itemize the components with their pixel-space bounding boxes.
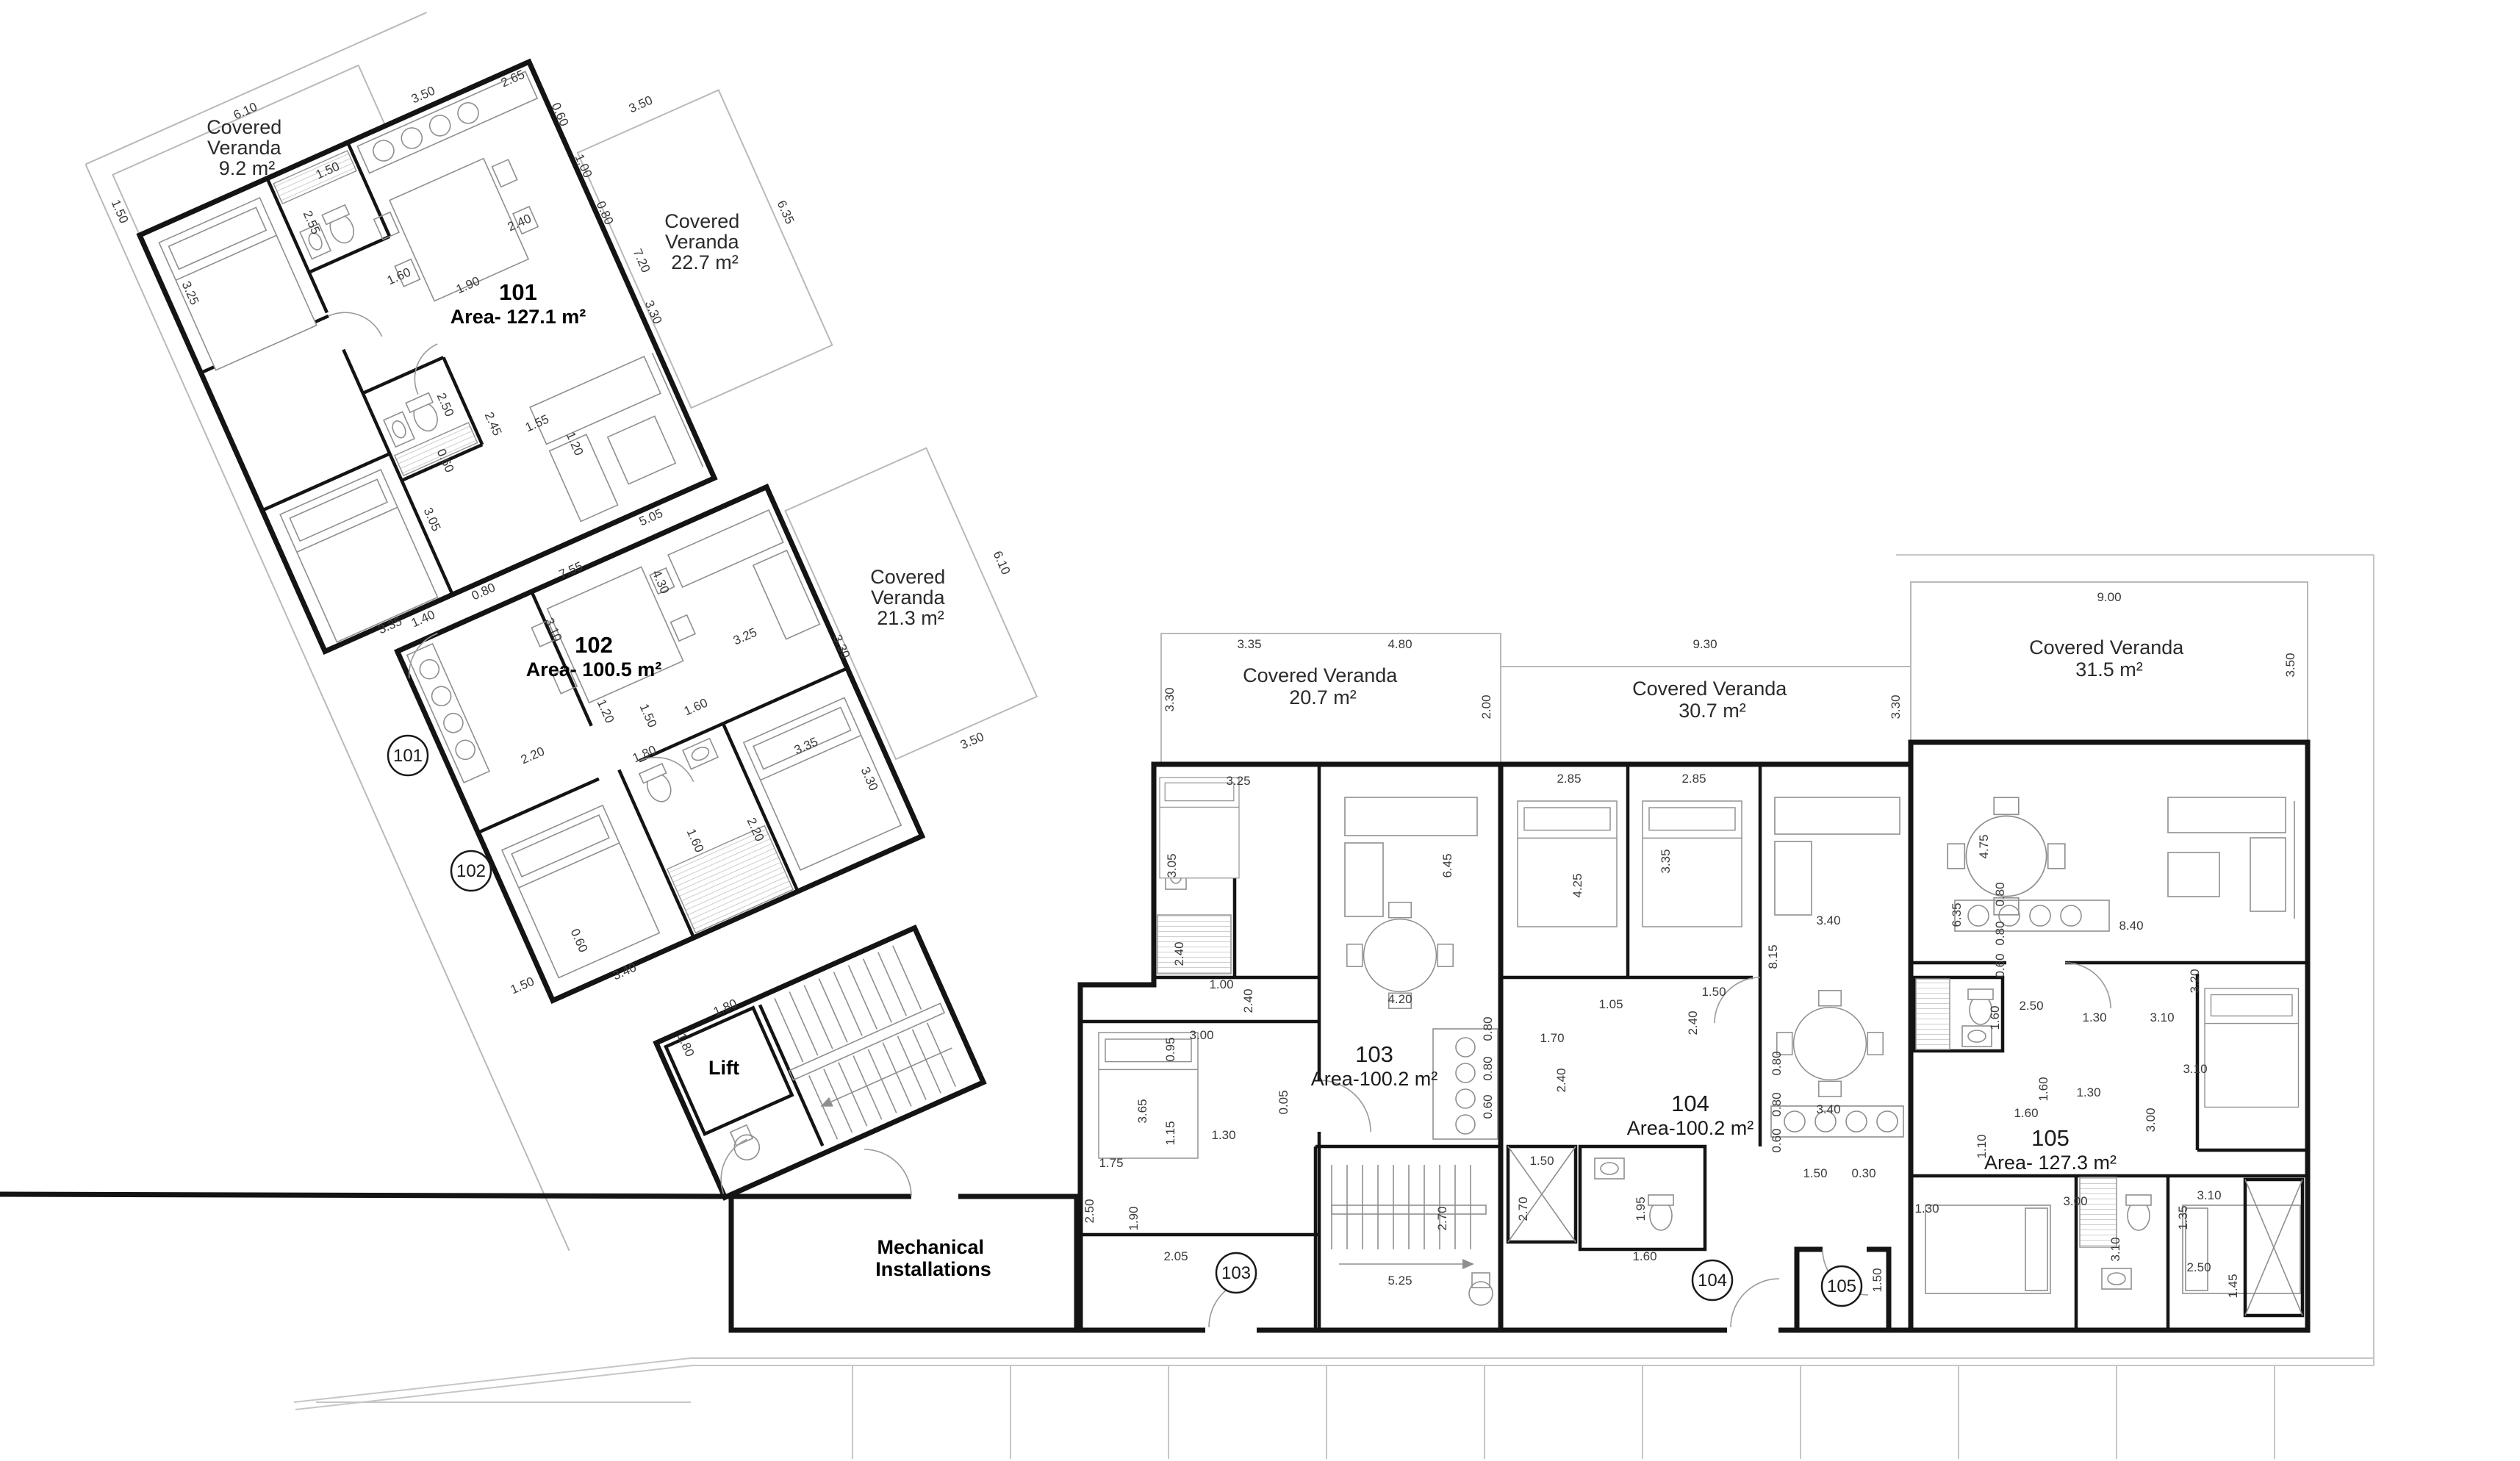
dimension-label: 1.50 (1803, 1166, 1827, 1180)
dimension-label: 2.05 (1163, 1249, 1188, 1263)
apartment-102-label: 102 (575, 632, 613, 658)
dimension-label: 1.20 (595, 697, 617, 725)
dimension-label: 1.90 (454, 274, 482, 297)
dimension-label: 3.10 (2183, 1062, 2207, 1076)
wheelchair-icon (1469, 1282, 1493, 1305)
dimension-label: 1.30 (2082, 1011, 2106, 1024)
dimension-label: 6.45 (1440, 853, 1454, 877)
dimension-label: 1.60 (684, 827, 707, 855)
dimension-label: 2.85 (1681, 772, 1706, 786)
dimension-label: 4.25 (1570, 873, 1584, 897)
dimension-label: 3.10 (2108, 1237, 2122, 1261)
dimension-label: 1.55 (523, 412, 551, 435)
dimension-label: 8.15 (1766, 944, 1780, 969)
apartment-105-label: 105 (2031, 1125, 2070, 1151)
dimension-label: 0.80 (1481, 1016, 1495, 1041)
dimension-labels: 6.101.503.502.650.601.000.803.303.252.55… (109, 68, 2297, 1299)
apartment-badge-105: 105 (1822, 1266, 1862, 1306)
veranda-20-7-label: Covered Veranda 20.7 m² (1243, 664, 1403, 708)
dimension-label: 3.40 (611, 961, 639, 983)
dimension-label: 2.40 (1241, 988, 1255, 1013)
dimension-label: 4.80 (1388, 637, 1412, 651)
dimension-label: 1.60 (1988, 1005, 2002, 1030)
apartment-badge-104: 104 (1692, 1260, 1732, 1300)
dimension-label: 1.35 (2176, 1205, 2190, 1230)
apartment-103-area: Area-100.2 m² (1311, 1068, 1438, 1090)
dimension-label: 0.05 (1277, 1090, 1290, 1114)
dimension-label: 3.40 (1816, 1102, 1840, 1116)
dimension-label: 2.00 (1479, 694, 1493, 719)
dimension-label: 0.60 (1993, 953, 2007, 977)
dimension-label: 0.80 (1481, 1056, 1495, 1080)
dimension-label: 1.50 (509, 974, 536, 997)
dimension-label: 6.35 (1950, 902, 1964, 927)
mechanical-label: Mechanical Installations (875, 1236, 991, 1280)
dimension-label: 1.50 (109, 198, 132, 226)
dimension-label: 8.40 (2119, 919, 2143, 933)
dimension-label: 0.60 (1770, 1128, 1784, 1152)
veranda-21-3-label: Covered Veranda 21.3 m² (870, 566, 951, 629)
dimension-label: 1.95 (1634, 1196, 1648, 1221)
dimension-label: 3.50 (627, 93, 655, 116)
apartment-105-area: Area- 127.3 m² (1984, 1152, 2117, 1174)
dimension-label: 3.30 (830, 633, 853, 661)
dimension-label: 1.90 (1127, 1206, 1141, 1230)
dimension-label: 1.60 (2014, 1106, 2038, 1120)
dimension-label: 3.20 (2188, 969, 2202, 993)
lift-label: Lift (708, 1057, 739, 1079)
veranda-9-2-label: Covered Veranda 9.2 m² (207, 116, 287, 179)
dimension-label: 2.70 (1435, 1206, 1449, 1230)
dimension-label: 1.30 (1914, 1202, 1939, 1216)
dimension-label: 9.30 (1692, 637, 1717, 651)
apartment-103-label: 103 (1355, 1041, 1393, 1067)
dimension-label: 0.80 (1770, 1092, 1784, 1116)
dimension-label: 3.10 (2150, 1011, 2174, 1024)
dimension-label: 3.65 (1135, 1099, 1149, 1123)
dimension-label: 0.95 (1163, 1037, 1177, 1061)
dimension-label: 1.50 (1701, 985, 1726, 999)
dimension-label: 3.50 (2283, 653, 2297, 677)
dimension-label: 1.60 (2036, 1077, 2050, 1101)
dimension-label: 3.30 (1163, 687, 1177, 711)
dimension-label: 6.10 (991, 549, 1013, 577)
dimension-label: 3.00 (2063, 1194, 2087, 1208)
dimension-label: 3.25 (1226, 774, 1250, 788)
apartment-badge-101: 101 (388, 736, 428, 775)
apartment-101-area: Area- 127.1 m² (450, 306, 586, 328)
dimension-label: 1.80 (631, 743, 658, 766)
dimension-label: 0.30 (1851, 1166, 1875, 1180)
dimension-label: 1.45 (2226, 1274, 2240, 1298)
dimension-label: 1.50 (637, 702, 660, 730)
dimension-label: 2.50 (1083, 1199, 1096, 1223)
apartment-101-label: 101 (499, 279, 537, 305)
apartment-badge-103: 103 (1216, 1253, 1256, 1293)
apartment-104-area: Area-100.2 m² (1627, 1117, 1754, 1139)
dimension-label: 2.70 (1516, 1196, 1530, 1221)
dimension-label: 1.75 (1099, 1156, 1123, 1170)
dimension-label: 3.00 (2144, 1108, 2158, 1132)
dimension-label: 1.10 (1975, 1134, 1989, 1158)
dimension-label: 1.50 (1529, 1154, 1554, 1168)
dimension-label: 9.00 (2097, 590, 2121, 604)
dimension-label: 4.75 (1977, 834, 1991, 858)
svg-text:105: 105 (1827, 1277, 1856, 1296)
dimension-label: 0.80 (1770, 1051, 1784, 1075)
dimension-label: 3.05 (1165, 853, 1179, 877)
dimension-label: 1.50 (1870, 1268, 1884, 1292)
dimension-label: 3.40 (1816, 913, 1840, 927)
dimension-label: 2.40 (1686, 1011, 1700, 1035)
svg-text:102: 102 (456, 861, 486, 881)
dimension-label: 0.80 (1993, 921, 2007, 945)
veranda-30-7-label: Covered Veranda 30.7 m² (1632, 678, 1792, 722)
dimension-label: 2.45 (482, 410, 505, 438)
dimension-label: 2.40 (1554, 1068, 1568, 1092)
svg-text:101: 101 (393, 746, 423, 766)
dimension-label: 7.20 (631, 247, 653, 275)
dimension-label: 1.60 (682, 696, 710, 719)
core-outline (656, 928, 983, 1198)
dimension-label: 3.35 (1659, 849, 1673, 873)
dimension-label: 3.50 (958, 730, 986, 753)
dimension-label: 5.25 (1388, 1274, 1412, 1288)
dimension-label: 3.10 (2197, 1188, 2221, 1202)
dimension-label: 3.00 (1189, 1028, 1213, 1042)
dimension-label: 7.55 (557, 559, 585, 582)
dimension-label: 1.60 (1632, 1249, 1656, 1263)
svg-text:104: 104 (1698, 1271, 1727, 1291)
dimension-label: 0.80 (1993, 882, 2007, 906)
dimension-label: 2.50 (434, 391, 457, 419)
apartment-102-area: Area- 100.5 m² (526, 658, 662, 681)
dimension-label: 2.85 (1557, 772, 1581, 786)
dimension-label: 2.40 (1172, 941, 1186, 966)
dimension-label: 2.20 (519, 744, 547, 767)
dimension-label: 3.30 (1889, 694, 1903, 719)
dimension-label: 2.50 (2186, 1260, 2211, 1274)
dimension-label: 1.70 (1540, 1031, 1564, 1045)
dimension-label: 1.00 (1209, 977, 1233, 991)
left-wing (85, 0, 1171, 1264)
dimension-label: 4.20 (1388, 992, 1412, 1006)
veranda-31-5-label: Covered Veranda 31.5 m² (2029, 636, 2189, 681)
dimension-label: 3.25 (731, 625, 759, 648)
dimension-label: 1.30 (2076, 1085, 2100, 1099)
dimension-label: 3.35 (1237, 637, 1261, 651)
dimension-label: 1.15 (1163, 1121, 1177, 1145)
apartment-104-label: 104 (1671, 1091, 1709, 1116)
veranda-22-7-label: Covered Veranda 22.7 m² (664, 210, 745, 273)
floor-plan-canvas: Covered Veranda 9.2 m² Covered Veranda 2… (0, 0, 2520, 1461)
dimension-label: 1.05 (1598, 997, 1623, 1011)
dimension-label: 1.30 (1211, 1128, 1235, 1142)
dimension-label: 0.60 (1481, 1094, 1495, 1119)
apartment-badge-102: 102 (451, 851, 491, 891)
dimension-label: 2.50 (2019, 999, 2043, 1013)
dimension-label: 3.10 (542, 616, 565, 644)
svg-text:103: 103 (1221, 1263, 1251, 1283)
